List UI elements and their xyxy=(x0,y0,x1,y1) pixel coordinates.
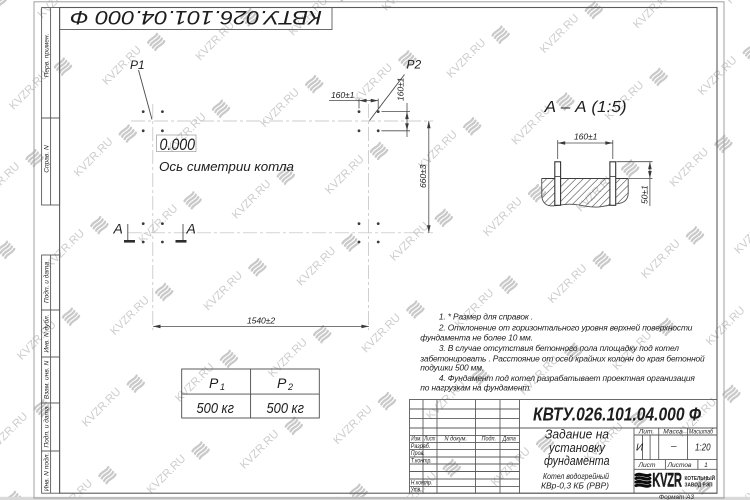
svg-text:Лист: Лист xyxy=(424,436,436,443)
svg-text:2: 2 xyxy=(287,382,293,392)
svg-text:КОТЕЛЬНЫЙ: КОТЕЛЬНЫЙ xyxy=(685,474,716,482)
svg-text:Р2: Р2 xyxy=(407,58,422,72)
svg-text:160±1: 160±1 xyxy=(574,132,598,142)
svg-text:А: А xyxy=(186,221,196,237)
svg-text:0.000: 0.000 xyxy=(160,136,196,154)
svg-text:500 кг: 500 кг xyxy=(267,400,305,417)
svg-text:Справ. N: Справ. N xyxy=(44,145,51,173)
svg-text:А – А (1:5): А – А (1:5) xyxy=(544,99,627,116)
svg-text:Р: Р xyxy=(209,375,219,391)
svg-text:3. В случае отсутствия бетонно: 3. В случае отсутствия бетонного пола пл… xyxy=(439,343,679,353)
svg-text:Подп. и дата: Подп. и дата xyxy=(43,262,51,304)
svg-text:Задание на: Задание на xyxy=(545,428,609,442)
svg-text:Лист: Лист xyxy=(638,462,656,469)
svg-text:КВТУ.026.101.04.000 Ф: КВТУ.026.101.04.000 Ф xyxy=(70,6,322,27)
svg-text:Пров.: Пров. xyxy=(411,450,425,457)
svg-text:1:20: 1:20 xyxy=(695,442,711,454)
svg-text:подушки 500 мм.: подушки 500 мм. xyxy=(420,363,484,373)
svg-text:А: А xyxy=(113,221,123,237)
svg-text:Р: Р xyxy=(277,375,287,391)
svg-text:Р1: Р1 xyxy=(130,58,145,72)
svg-text:Изм.: Изм. xyxy=(411,436,422,443)
svg-text:Перв. примен.: Перв. примен. xyxy=(44,33,51,77)
svg-text:Котел водогрейный: Котел водогрейный xyxy=(543,471,609,481)
svg-text:Н.контр.: Н.контр. xyxy=(411,479,433,486)
svg-text:160±1: 160±1 xyxy=(331,90,355,100)
svg-text:1. * Размер для справок .: 1. * Размер для справок . xyxy=(439,311,533,321)
svg-text:Подп. и дата: Подп. и дата xyxy=(43,406,51,448)
svg-text:500 кг: 500 кг xyxy=(197,400,235,417)
svg-text:Ось симетрии котла: Ось симетрии котла xyxy=(159,159,294,174)
svg-text:2. Отклонение от горизонтально: 2. Отклонение от горизонтального уровня … xyxy=(438,322,693,332)
svg-text:КВр-0,3 КБ (РВР): КВр-0,3 КБ (РВР) xyxy=(541,481,609,491)
svg-text:Листов: Листов xyxy=(666,462,692,469)
svg-text:1540±2: 1540±2 xyxy=(247,316,275,326)
svg-text:KVZR: KVZR xyxy=(652,471,682,492)
svg-text:Взам. инв. N: Взам. инв. N xyxy=(44,361,51,400)
svg-text:50±1: 50±1 xyxy=(640,185,650,204)
svg-text:Формат А3: Формат А3 xyxy=(659,494,694,500)
svg-text:160±1: 160±1 xyxy=(396,77,406,101)
svg-text:Масштаб: Масштаб xyxy=(689,428,713,436)
svg-text:Масса: Масса xyxy=(663,429,683,436)
svg-text:ЗАВОД РЭП: ЗАВОД РЭП xyxy=(685,482,713,488)
svg-text:Инв. N дубл.: Инв. N дубл. xyxy=(43,314,51,352)
svg-text:660±3: 660±3 xyxy=(418,164,428,188)
svg-text:фундамента: фундамента xyxy=(544,454,610,468)
svg-text:Утв.: Утв. xyxy=(410,487,421,494)
svg-text:Подп.: Подп. xyxy=(482,435,497,443)
svg-text:Инв. N подл.: Инв. N подл. xyxy=(43,453,51,492)
svg-text:N докум.: N докум. xyxy=(445,435,468,443)
svg-text:Дата: Дата xyxy=(502,436,516,443)
svg-text:1: 1 xyxy=(220,382,225,392)
svg-text:установку: установку xyxy=(548,441,606,455)
svg-text:КВТУ.026.101.04.000 Ф: КВТУ.026.101.04.000 Ф xyxy=(533,404,701,425)
svg-text:по нагрузкам на фундамент.: по нагрузкам на фундамент. xyxy=(420,383,531,393)
svg-text:Лит.: Лит. xyxy=(638,429,655,436)
svg-text:Разраб.: Разраб. xyxy=(411,442,431,450)
svg-text:–: – xyxy=(670,441,677,452)
svg-text:И: И xyxy=(636,443,644,454)
svg-text:фундамента не более 10 мм.: фундамента не более 10 мм. xyxy=(420,333,532,343)
svg-text:1: 1 xyxy=(704,462,708,469)
svg-text:Т.контр.: Т.контр. xyxy=(411,457,432,464)
